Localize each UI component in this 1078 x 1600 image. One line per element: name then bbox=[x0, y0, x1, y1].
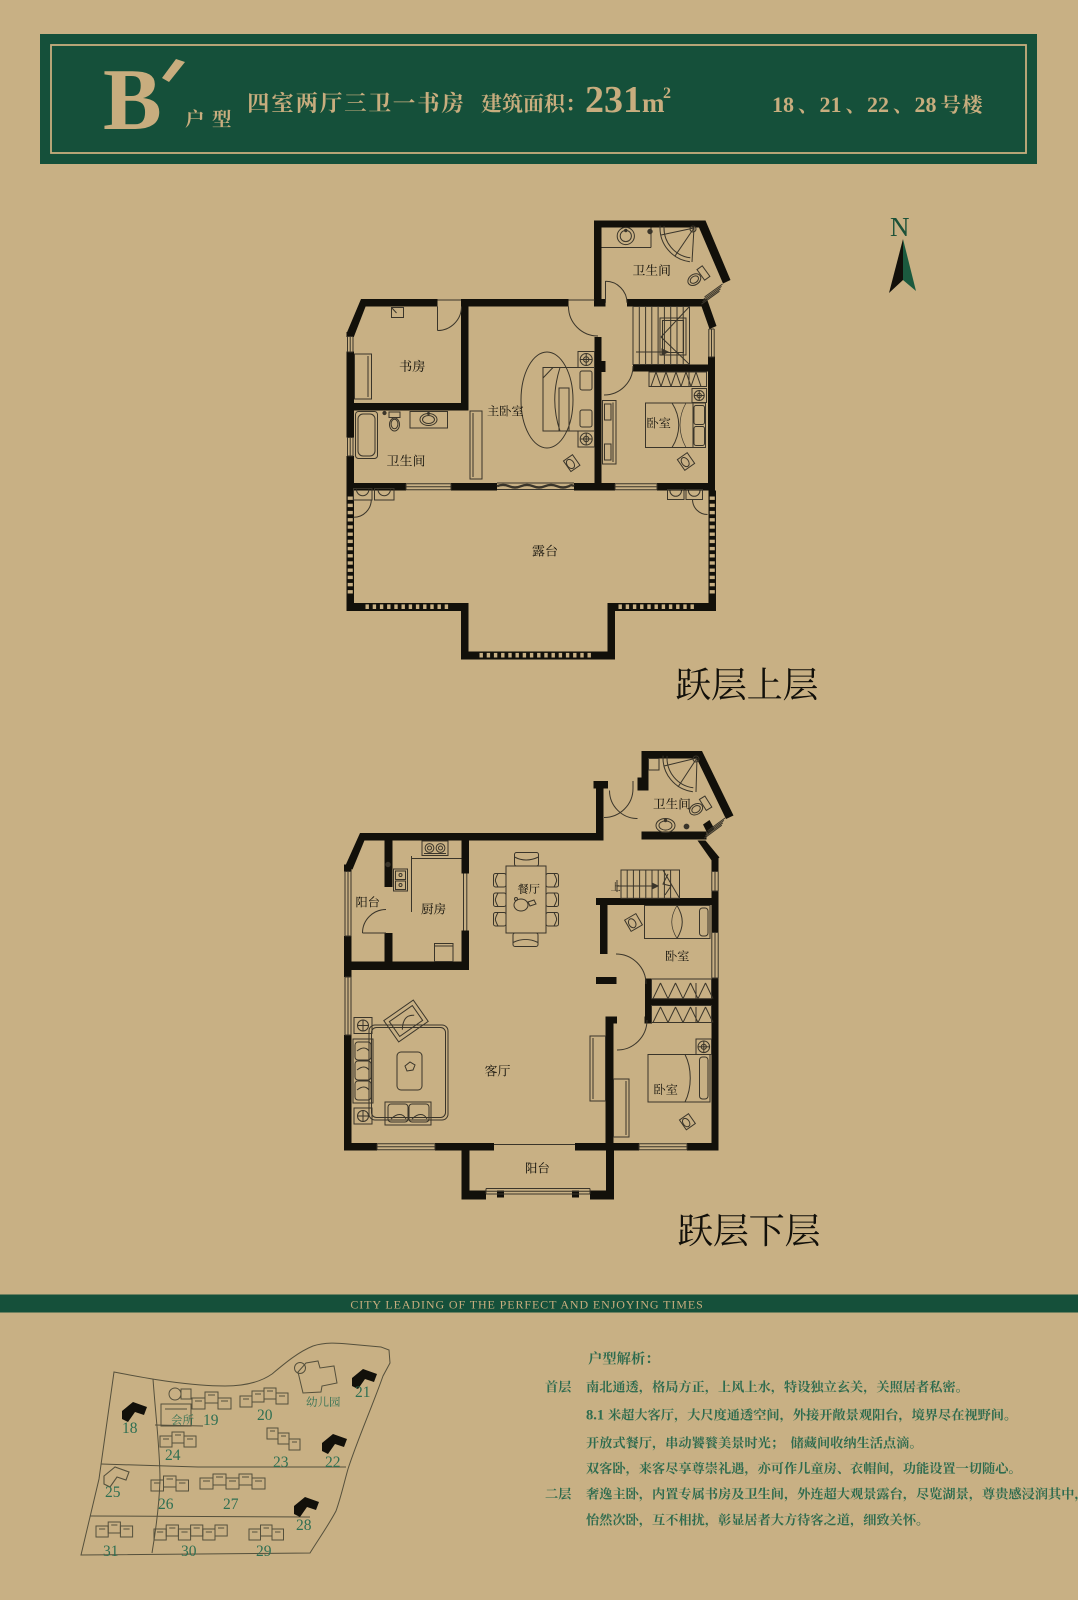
svg-text:2: 2 bbox=[663, 85, 671, 102]
svg-text:N: N bbox=[890, 212, 910, 242]
svg-text:28: 28 bbox=[296, 1517, 312, 1534]
svg-text:25: 25 bbox=[105, 1484, 121, 1501]
svg-text:24: 24 bbox=[165, 1447, 181, 1464]
svg-text:8.1: 8.1 bbox=[586, 1408, 604, 1424]
svg-text:26: 26 bbox=[158, 1496, 174, 1513]
svg-text:22: 22 bbox=[867, 92, 889, 117]
svg-text:22: 22 bbox=[325, 1454, 341, 1471]
svg-text:30: 30 bbox=[181, 1543, 197, 1560]
svg-text:21: 21 bbox=[355, 1384, 371, 1401]
svg-text:21: 21 bbox=[820, 92, 842, 117]
svg-text:18: 18 bbox=[122, 1420, 138, 1437]
svg-text:231: 231 bbox=[585, 79, 642, 121]
svg-text:31: 31 bbox=[103, 1543, 119, 1560]
svg-text:29: 29 bbox=[256, 1543, 272, 1560]
svg-text:23: 23 bbox=[273, 1454, 289, 1471]
svg-text:B: B bbox=[103, 52, 162, 149]
svg-text:27: 27 bbox=[223, 1496, 239, 1513]
svg-text:CITY LEADING OF THE PERFECT AN: CITY LEADING OF THE PERFECT AND ENJOYING… bbox=[350, 1298, 703, 1312]
svg-text:19: 19 bbox=[203, 1412, 219, 1429]
svg-text:m: m bbox=[642, 88, 665, 118]
svg-text:28: 28 bbox=[915, 92, 937, 117]
svg-text:20: 20 bbox=[257, 1407, 273, 1424]
svg-text:18: 18 bbox=[772, 92, 794, 117]
